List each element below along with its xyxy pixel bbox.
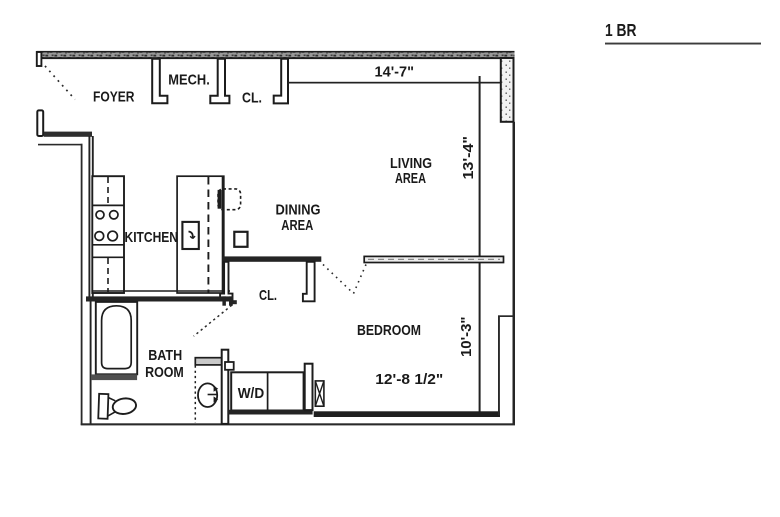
svg-text:MECH.: MECH. xyxy=(168,72,210,89)
svg-text:KITCHEN: KITCHEN xyxy=(125,229,179,246)
svg-text:12'-8 1/2": 12'-8 1/2" xyxy=(375,372,443,388)
svg-text:CL.: CL. xyxy=(242,90,262,107)
svg-text:BATH: BATH xyxy=(148,348,182,364)
svg-text:1 BR: 1 BR xyxy=(605,20,637,40)
svg-text:FOYER: FOYER xyxy=(93,89,135,106)
svg-text:ROOM: ROOM xyxy=(145,365,184,381)
svg-text:13'-4": 13'-4" xyxy=(460,136,477,180)
svg-text:BEDROOM: BEDROOM xyxy=(357,322,421,339)
svg-text:14'-7": 14'-7" xyxy=(375,64,415,81)
svg-text:CL.: CL. xyxy=(259,287,277,304)
svg-text:AREA: AREA xyxy=(281,217,313,234)
svg-text:W/D: W/D xyxy=(238,386,265,402)
svg-text:AREA: AREA xyxy=(395,170,426,187)
svg-text:10'-3": 10'-3" xyxy=(458,317,475,358)
